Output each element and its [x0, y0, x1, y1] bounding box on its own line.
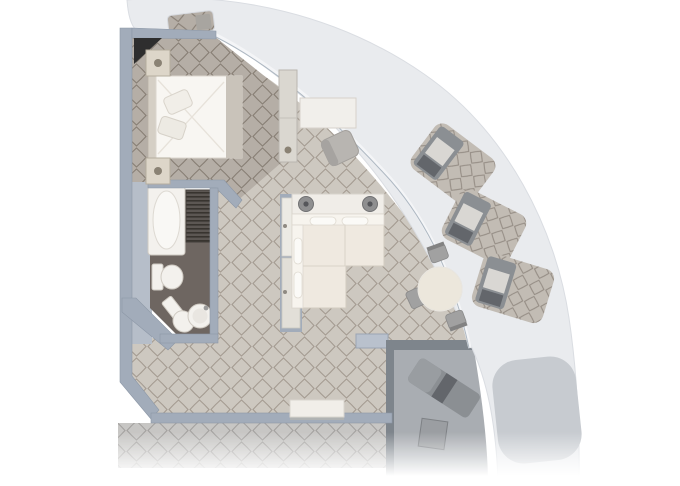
terrace-top-wall [386, 340, 478, 350]
desk [300, 98, 356, 128]
bathtub [148, 186, 185, 255]
floor-plan-svg [0, 0, 680, 486]
nightstand-upper [146, 50, 170, 76]
washbasin [188, 304, 212, 328]
sofa-back-top [292, 214, 384, 225]
entry-bench [195, 14, 212, 31]
nightstand-lower [146, 158, 170, 184]
wardrobe [279, 70, 297, 162]
table-lamp-left [299, 197, 314, 212]
cabinet-knob [283, 224, 287, 228]
sofa-pillow [294, 272, 302, 298]
wall-suite-bottom [151, 413, 392, 423]
floor-plan-page [0, 0, 680, 486]
toilet [152, 264, 183, 290]
table-lamp-right [363, 197, 378, 212]
console-table [292, 194, 384, 214]
terrace-door-stub [356, 334, 388, 348]
sofa-pillow [294, 238, 302, 264]
cabinet-knob [283, 290, 287, 294]
bottom-fade [80, 430, 620, 486]
wall-bath-hall [210, 188, 218, 338]
slatted-closet [186, 190, 212, 242]
sofa-pillow [310, 217, 336, 225]
storage-bench [290, 400, 344, 420]
bed-foot-runner [226, 76, 242, 158]
sofa-pillow [342, 217, 368, 225]
wall-foyer-top [160, 334, 218, 343]
double-bed [148, 74, 242, 160]
faucet [204, 306, 209, 311]
